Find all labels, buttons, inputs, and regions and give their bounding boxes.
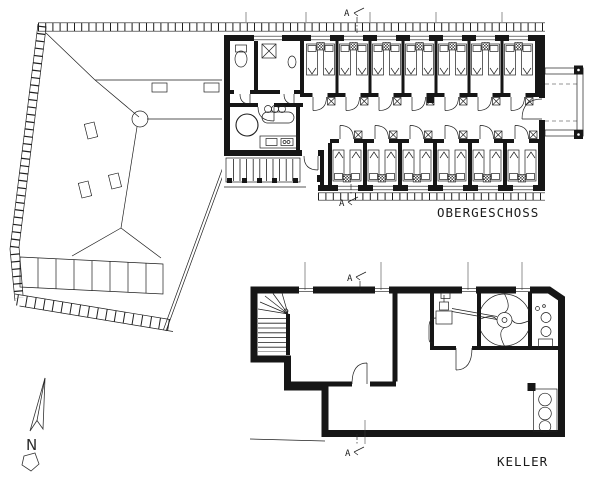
section-arrow-icon	[348, 197, 358, 205]
corridor-shaft	[427, 96, 434, 103]
section-letter: A	[339, 199, 345, 209]
section-letter: A	[347, 274, 353, 284]
basement-exterior-walls	[254, 290, 562, 434]
floor-plan-drawing: A A A A N OBERGESCHOSS KELLER	[0, 0, 604, 480]
section-marker-og-top: A	[344, 8, 364, 33]
basement-interior-walls	[287, 288, 559, 384]
compass-base-icon	[22, 453, 39, 471]
basement-post	[528, 383, 536, 391]
pump-unit	[429, 293, 497, 344]
eave-band-bottom	[318, 193, 545, 200]
section-arrow-icon	[354, 8, 364, 16]
section-arrow-icon	[354, 447, 364, 455]
upper-floor-plan	[222, 12, 583, 200]
store-room-door	[352, 363, 367, 384]
section-arrow-icon	[356, 272, 366, 280]
porch-post	[317, 175, 324, 182]
roof-eave-strip-bottom	[15, 294, 173, 332]
upper-floor-label: OBERGESCHOSS	[437, 205, 539, 220]
roof-eave-hatch-top	[38, 23, 545, 31]
drawing-sheet: A A A A N OBERGESCHOSS KELLER	[0, 0, 604, 480]
grade-line	[250, 439, 325, 441]
north-arrow: N	[22, 378, 45, 471]
roof-panel-band	[20, 257, 163, 294]
north-letter: N	[26, 436, 37, 454]
roof-skylights	[78, 83, 219, 198]
chimney	[132, 111, 148, 127]
basement-plan	[250, 262, 562, 444]
section-letter: A	[345, 449, 351, 459]
section-letter: A	[344, 9, 350, 19]
boiler-equipment	[536, 305, 553, 349]
roof-edge-diagonal	[164, 158, 230, 332]
basement-stair	[258, 293, 288, 355]
roof-eave-hatch-left	[10, 24, 46, 301]
dimension-ticks	[246, 12, 502, 22]
basement-label: KELLER	[497, 454, 548, 469]
section-marker-keller-bottom: A	[345, 434, 364, 459]
machine-room-door	[456, 348, 472, 370]
roof-ridge-lines	[46, 33, 224, 258]
storage-tanks	[528, 383, 558, 432]
north-arrow-icon	[30, 378, 45, 431]
turbine-wheel	[479, 294, 531, 346]
